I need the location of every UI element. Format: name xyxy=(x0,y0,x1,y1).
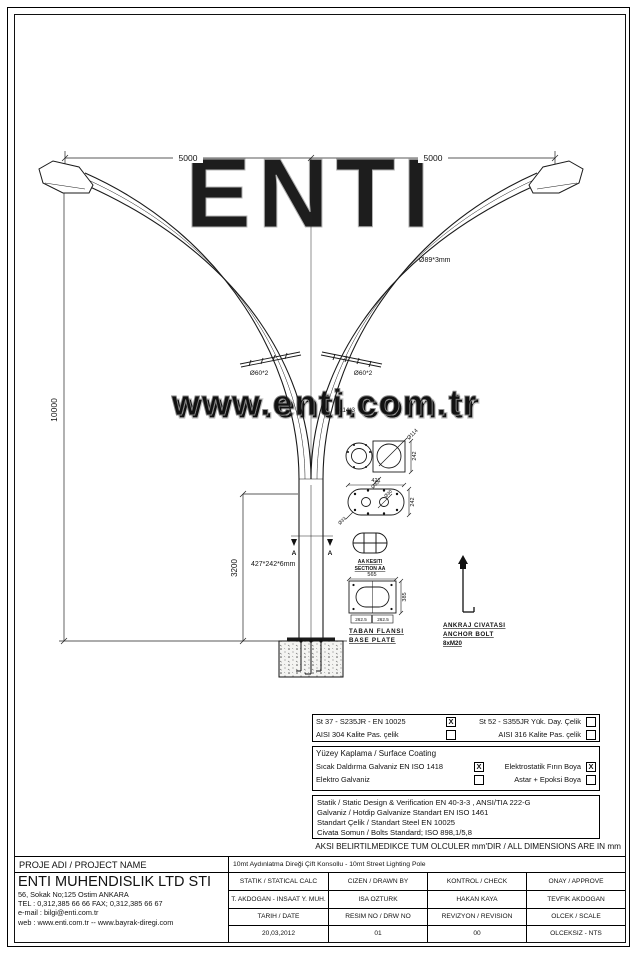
dim-base-section-height: 3200 xyxy=(230,559,239,577)
baseplate-title-en: BASE PLATE xyxy=(349,637,396,644)
label-pole-section: 427*242*6mm xyxy=(251,561,296,568)
coating-spec-table: Yüzey Kaplama / Surface Coating Sıcak Da… xyxy=(312,746,600,791)
checkbox-aisi304 xyxy=(446,730,456,740)
material-option-aisi304: AISI 304 Kalite Pas. çelik xyxy=(316,730,444,739)
value-statik: T. AKDOGAN - INSAAT Y. MUH. xyxy=(229,890,328,907)
detail-oval-plate xyxy=(346,483,411,519)
section-marker-a-right: A xyxy=(328,550,333,557)
coating-row-2: Elektro Galvaniz Astar + Epoksi Boya xyxy=(313,773,599,786)
checkbox-st52 xyxy=(586,717,596,727)
pole-technical-drawing: ENTI www.enti.com.tr www.enti.com.tr 500… xyxy=(15,15,625,707)
material-row-1: St 37 - S235JR - EN 10025 X St 52 - S355… xyxy=(313,715,599,728)
section-aa-title-tr: AA KESITI xyxy=(358,559,383,565)
header-resim-no: RESIM NO / DRW NO xyxy=(328,908,427,925)
company-email: e-mail : bilgi@enti.com.tr xyxy=(18,908,225,917)
dim-baseplate-left: 262.5 xyxy=(355,617,367,622)
website-watermark: www.enti.com.tr www.enti.com.tr xyxy=(171,382,482,426)
luminaire-right xyxy=(529,161,583,193)
project-name-label: PROJE ADI / PROJECT NAME xyxy=(15,857,229,872)
standard-line-static: Statik / Static Design & Verification EN… xyxy=(317,798,595,808)
project-name: 10mt Aydınlatma Direği Çift Konsollu - 1… xyxy=(229,857,625,872)
detail-section-aa xyxy=(353,533,387,553)
checkbox-hotdip: X xyxy=(474,762,484,772)
header-revizyon: REVIZYON / REVISION xyxy=(427,908,526,925)
header-statik: STATIK / STATICAL CALC xyxy=(229,873,328,890)
checkbox-st37: X xyxy=(446,717,456,727)
checkbox-electro xyxy=(474,775,484,785)
drawing-sheet: ENTI www.enti.com.tr www.enti.com.tr 500… xyxy=(0,0,640,956)
standard-line-bolts: Civata Somun / Bolts Standard; ISO 898,1… xyxy=(317,828,595,838)
checkbox-epoxy xyxy=(586,775,596,785)
section-marker-a-left: A xyxy=(292,550,297,557)
material-spec-table: St 37 - S235JR - EN 10025 X St 52 - S355… xyxy=(312,714,600,742)
label-bracket-right: Ø60*2 xyxy=(354,370,373,377)
checkbox-electrostatic: X xyxy=(586,762,596,772)
dim-plate-height: 242 xyxy=(410,497,416,506)
approval-grid: STATIK / STATICAL CALC CIZEN / DRAWN BY … xyxy=(229,873,625,942)
header-kontrol: KONTROL / CHECK xyxy=(427,873,526,890)
value-olcek: OLCEKSIZ - NTS xyxy=(526,925,625,942)
checkbox-mark: X xyxy=(476,763,481,771)
company-phone: TEL : 0,312,385 66 66 FAX; 0,312,385 66 … xyxy=(18,899,225,908)
label-bracket-left: Ø60*2 xyxy=(250,370,269,377)
dim-total-height: 10000 xyxy=(49,398,59,422)
checkbox-aisi316 xyxy=(586,730,596,740)
coating-option-hotdip: Sıcak Daldırma Galvaniz EN ISO 1418 xyxy=(316,762,472,771)
anchorbolt-title-tr: ANKRAJ CIVATASI xyxy=(443,622,506,629)
title-block: PROJE ADI / PROJECT NAME 10mt Aydınlatma… xyxy=(15,856,625,942)
baseplate-title-tr: TABAN FLANSI xyxy=(349,628,404,635)
coating-title: Yüzey Kaplama / Surface Coating xyxy=(313,747,599,760)
dim-baseplate-height: 385 xyxy=(402,592,408,601)
title-block-row-project: PROJE ADI / PROJECT NAME 10mt Aydınlatma… xyxy=(15,857,625,873)
checkbox-mark: X xyxy=(588,763,593,771)
label-pole-tube: Ø114*3 xyxy=(335,408,356,414)
dim-arm-right: 5000 xyxy=(424,153,443,163)
value-revizyon: 00 xyxy=(427,925,526,942)
anchorbolt-title-en: ANCHOR BOLT xyxy=(443,631,494,638)
detail-anchor-bolt xyxy=(458,555,474,612)
foundation-block xyxy=(279,639,343,677)
coating-row-1: Sıcak Daldırma Galvaniz EN ISO 1418 X El… xyxy=(313,760,599,773)
value-kontrol: HAKAN KAYA xyxy=(427,890,526,907)
company-address: 56, Sokak No;125 Ostim ANKARA xyxy=(18,890,225,899)
dim-plate-width: 421 xyxy=(371,478,380,484)
coating-option-epoxy: Astar + Epoksi Boya xyxy=(484,775,584,784)
anchorbolt-spec: 8xM20 xyxy=(443,640,462,647)
material-option-st52: St 52 - S355JR Yük. Day. Çelik xyxy=(456,717,584,726)
dim-baseplate-width: 565 xyxy=(367,572,376,578)
coating-option-electrostatic: Elektrostatik Fırın Boya xyxy=(484,762,584,771)
standard-line-steel: Standart Çelik / Standart Steel EN 10025 xyxy=(317,818,595,828)
company-info: ENTI MUHENDISLIK LTD STI 56, Sokak No;12… xyxy=(15,873,229,942)
value-onay: TEVFIK AKDOGAN xyxy=(526,890,625,907)
coating-option-electro: Elektro Galvaniz xyxy=(316,775,472,784)
company-name: ENTI MUHENDISLIK LTD STI xyxy=(18,874,225,890)
standard-line-galvanize: Galvaniz / Hotdip Galvanize Standart EN … xyxy=(317,808,595,818)
header-onay: ONAY / APPROVE xyxy=(526,873,625,890)
dim-twin-height: 242 xyxy=(412,451,418,460)
checkbox-mark: X xyxy=(448,718,453,726)
sheet-inner-border: ENTI www.enti.com.tr www.enti.com.tr 500… xyxy=(14,14,626,943)
standards-table: Statik / Static Design & Verification EN… xyxy=(312,795,600,839)
value-cizen: ISA OZTURK xyxy=(328,890,427,907)
header-cizen: CIZEN / DRAWN BY xyxy=(328,873,427,890)
value-resim-no: 01 xyxy=(328,925,427,942)
section-aa-marker: A A xyxy=(291,536,333,557)
dim-arm-left: 5000 xyxy=(179,153,198,163)
header-tarih: TARIH / DATE xyxy=(229,908,328,925)
luminaire-left xyxy=(39,161,93,193)
material-option-aisi316: AISI 316 Kalite Pas. çelik xyxy=(456,730,584,739)
label-arm-tube: Ø89*3mm xyxy=(419,257,451,264)
company-web: web : www.enti.com.tr -- www.bayrak-dire… xyxy=(18,918,225,927)
dimensions-note: AKSI BELIRTILMEDIKCE TUM OLCULER mm'DIR … xyxy=(15,842,621,851)
dim-plate-hole: Ø33 xyxy=(337,516,348,527)
material-row-2: AISI 304 Kalite Pas. çelik AISI 316 Kali… xyxy=(313,728,599,741)
header-olcek: OLCEK / SCALE xyxy=(526,908,625,925)
material-option-st37: St 37 - S235JR - EN 10025 xyxy=(316,717,444,726)
value-tarih: 20,03,2012 xyxy=(229,925,328,942)
dim-baseplate-right: 262.5 xyxy=(377,617,389,622)
